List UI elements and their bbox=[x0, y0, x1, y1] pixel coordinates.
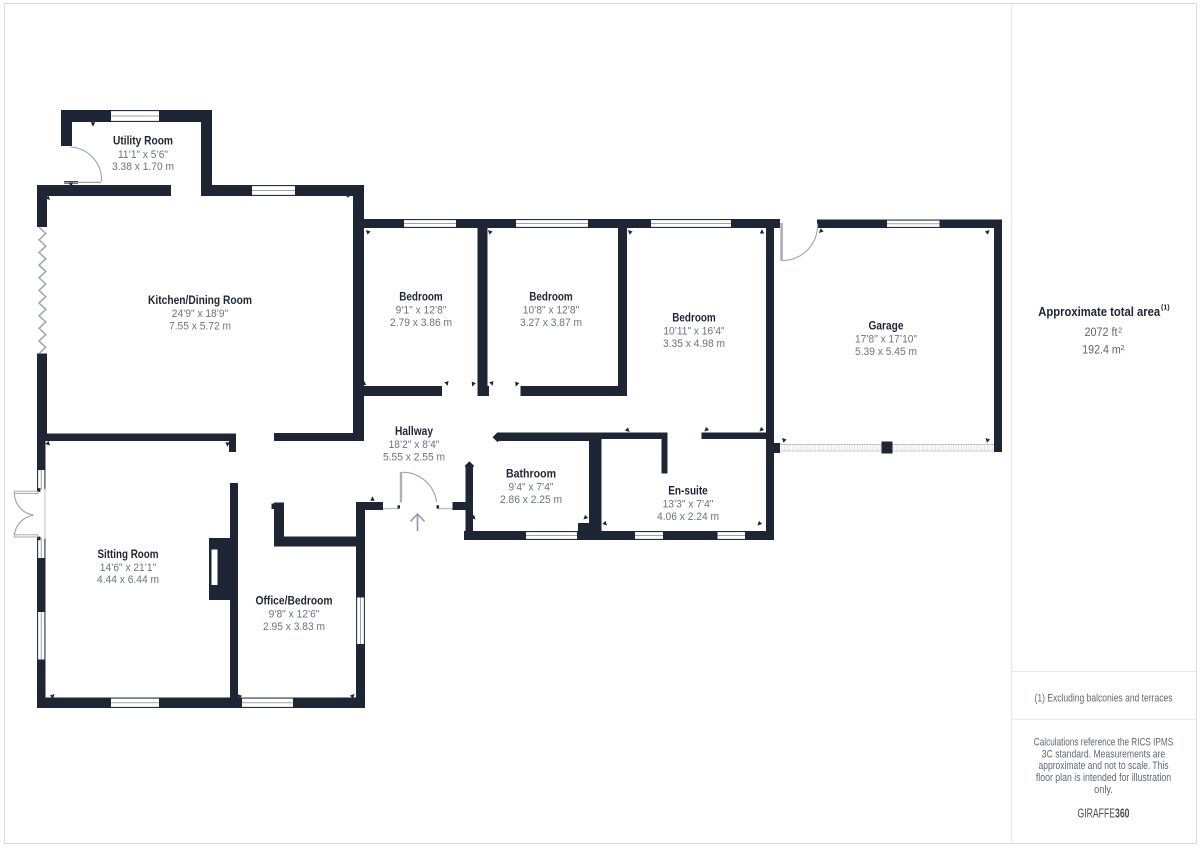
svg-text:approximate and not to scale.: approximate and not to scale. This bbox=[1039, 760, 1169, 772]
svg-text:14’6" x 21’1": 14’6" x 21’1" bbox=[100, 562, 156, 574]
svg-text:9’1" x 12’8": 9’1" x 12’8" bbox=[396, 305, 447, 317]
svg-text:13’3" x 7’4": 13’3" x 7’4" bbox=[663, 499, 714, 511]
svg-text:3.35 x 4.98 m: 3.35 x 4.98 m bbox=[663, 338, 725, 350]
svg-text:Kitchen/Dining Room: Kitchen/Dining Room bbox=[148, 295, 252, 307]
svg-text:(1) Excluding balconies and te: (1) Excluding balconies and terraces bbox=[1035, 692, 1173, 704]
svg-text:(1): (1) bbox=[1161, 305, 1170, 312]
svg-text:18’2" x 8’4": 18’2" x 8’4" bbox=[389, 439, 440, 451]
svg-text:2072 ft: 2072 ft bbox=[1085, 327, 1119, 339]
svg-text:Bedroom: Bedroom bbox=[672, 313, 716, 325]
svg-text:10’8" x 12’8": 10’8" x 12’8" bbox=[523, 305, 579, 317]
svg-text:2: 2 bbox=[1118, 325, 1122, 334]
svg-text:2: 2 bbox=[1121, 343, 1125, 352]
svg-text:floor plan is intended for ill: floor plan is intended for illustration bbox=[1036, 772, 1171, 784]
svg-text:GIRAFFE360: GIRAFFE360 bbox=[1078, 807, 1130, 821]
svg-text:Office/Bedroom: Office/Bedroom bbox=[256, 596, 333, 608]
svg-text:2.86 x 2.25 m: 2.86 x 2.25 m bbox=[500, 494, 562, 506]
svg-text:Bedroom: Bedroom bbox=[529, 291, 573, 303]
svg-text:3C standard. Measurements are: 3C standard. Measurements are bbox=[1042, 748, 1165, 760]
svg-text:24’9" x 18’9": 24’9" x 18’9" bbox=[172, 308, 228, 320]
svg-text:5.55 x 2.55 m: 5.55 x 2.55 m bbox=[383, 451, 445, 463]
svg-text:10’11" x 16’4": 10’11" x 16’4" bbox=[663, 326, 724, 338]
svg-text:Calculations reference the RIC: Calculations reference the RICS IPMS bbox=[1034, 736, 1173, 748]
svg-text:4.06 x 2.24 m: 4.06 x 2.24 m bbox=[657, 511, 719, 523]
svg-text:9’8" x 12’6": 9’8" x 12’6" bbox=[269, 609, 320, 621]
svg-text:En-suite: En-suite bbox=[668, 486, 708, 498]
svg-text:Approximate total area: Approximate total area bbox=[1038, 305, 1161, 319]
svg-text:Bathroom: Bathroom bbox=[506, 469, 556, 481]
svg-text:Utility Room: Utility Room bbox=[113, 136, 173, 148]
svg-text:3.27 x 3.87 m: 3.27 x 3.87 m bbox=[520, 317, 582, 329]
svg-text:Sitting Room: Sitting Room bbox=[98, 549, 159, 561]
svg-text:4.44 x 6.44 m: 4.44 x 6.44 m bbox=[97, 574, 159, 586]
svg-text:Bedroom: Bedroom bbox=[399, 291, 443, 303]
svg-text:Hallway: Hallway bbox=[395, 426, 434, 438]
svg-text:9’4" x 7’4": 9’4" x 7’4" bbox=[508, 482, 553, 494]
svg-text:192.4 m: 192.4 m bbox=[1082, 345, 1121, 357]
svg-text:11’1" x 5’6": 11’1" x 5’6" bbox=[118, 149, 168, 161]
svg-text:only.: only. bbox=[1094, 784, 1113, 796]
svg-text:5.39 x 5.45 m: 5.39 x 5.45 m bbox=[855, 346, 917, 358]
svg-text:Garage: Garage bbox=[869, 321, 904, 333]
svg-text:3.38 x 1.70 m: 3.38 x 1.70 m bbox=[112, 161, 174, 173]
svg-text:2.79 x 3.86 m: 2.79 x 3.86 m bbox=[390, 317, 452, 329]
svg-text:17’8" x 17’10": 17’8" x 17’10" bbox=[855, 334, 917, 346]
svg-text:2.95 x 3.83 m: 2.95 x 3.83 m bbox=[263, 621, 325, 633]
svg-text:7.55 x 5.72 m: 7.55 x 5.72 m bbox=[169, 320, 231, 332]
